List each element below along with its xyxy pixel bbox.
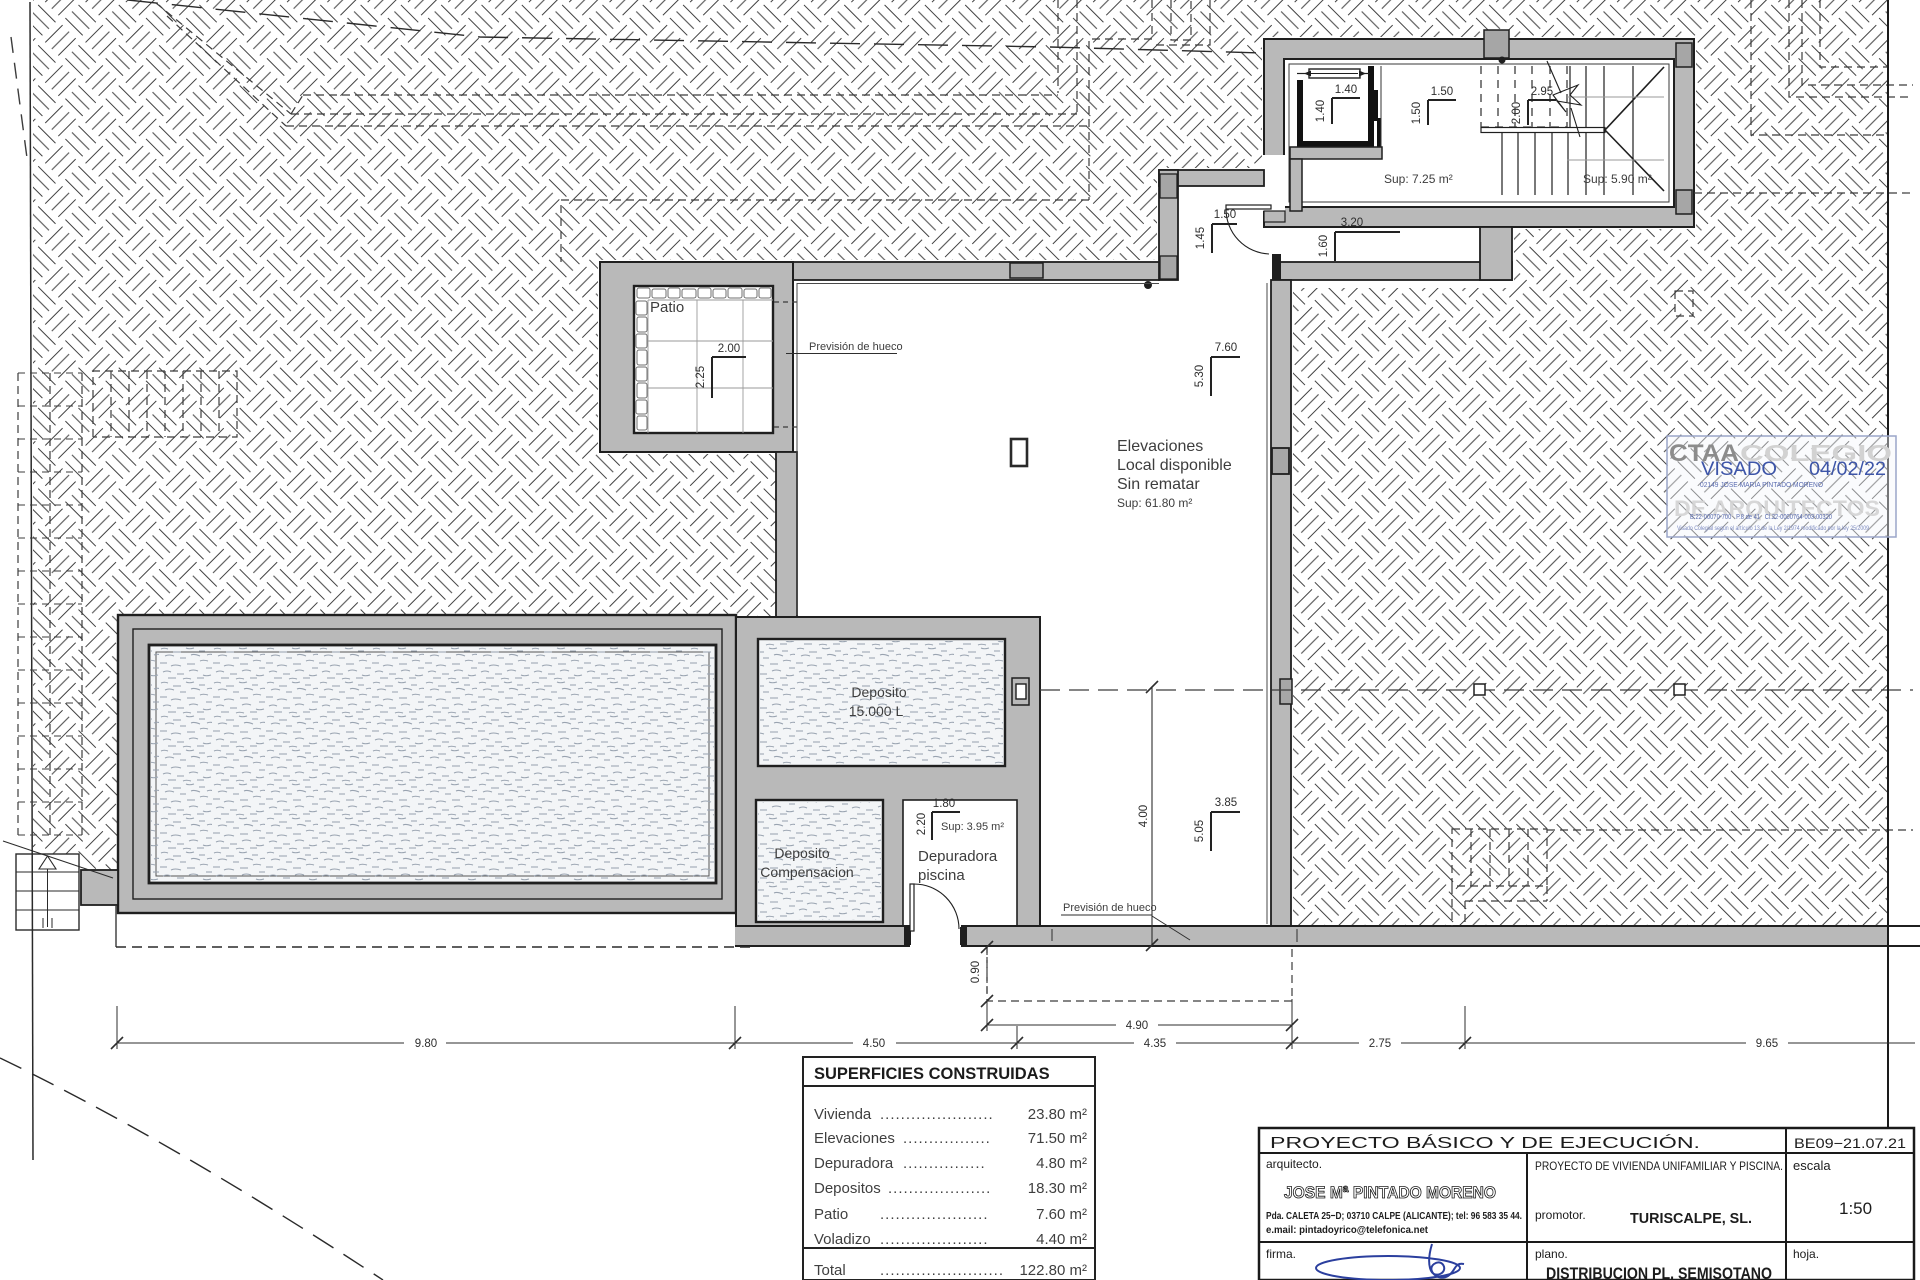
svg-text:1.50: 1.50 (1431, 86, 1453, 98)
svg-text:2.00: 2.00 (718, 343, 740, 355)
svg-text:TURISCALPE, SL.: TURISCALPE, SL. (1630, 1211, 1752, 1227)
svg-text:9.80: 9.80 (415, 1038, 437, 1050)
svg-text:4.50: 4.50 (863, 1038, 885, 1050)
svg-text:122.80 m²: 122.80 m² (1019, 1262, 1087, 1279)
svg-text:71.50 m²: 71.50 m² (1028, 1130, 1087, 1147)
svg-text:18.30 m²: 18.30 m² (1028, 1180, 1087, 1197)
svg-text:arquitecto.: arquitecto. (1266, 1157, 1322, 1171)
svg-text:1.40: 1.40 (1315, 100, 1327, 122)
svg-text:Previsión de hueco: Previsión de hueco (1063, 902, 1157, 914)
svg-text:15.000 L: 15.000 L (849, 703, 904, 719)
svg-text:4.90: 4.90 (1126, 1020, 1148, 1032)
svg-text:Voladizo: Voladizo (814, 1231, 871, 1248)
svg-text:BE09−21.07.21: BE09−21.07.21 (1794, 1135, 1906, 1151)
svg-text:04/02/22: 04/02/22 (1809, 459, 1886, 480)
svg-text:2.20: 2.20 (916, 813, 928, 835)
svg-text:1.40: 1.40 (1335, 84, 1357, 96)
svg-text:Depuradora: Depuradora (918, 848, 998, 865)
svg-text:VISADO: VISADO (1701, 459, 1777, 480)
svg-text:Sup: 5.90 m²: Sup: 5.90 m² (1583, 172, 1652, 186)
svg-text:Local disponible: Local disponible (1117, 457, 1232, 474)
svg-text:4.35: 4.35 (1144, 1038, 1166, 1050)
svg-text:0.90: 0.90 (970, 961, 982, 983)
svg-text:PROYECTO DE VIVIENDA UNIFAM: PROYECTO DE VIVIENDA UNIFAMILIAR Y PISCI… (1535, 1159, 1783, 1173)
svg-text:1.60: 1.60 (1318, 235, 1330, 257)
svg-text:1.50: 1.50 (1411, 102, 1423, 124)
svg-text:promotor.: promotor. (1535, 1208, 1586, 1222)
svg-text:3.85: 3.85 (1215, 797, 1237, 809)
svg-text:Deposito: Deposito (774, 845, 829, 861)
svg-text:e.mail: pintadoyrico@telefonic: e.mail: pintadoyrico@telefonica.net (1266, 1224, 1428, 1236)
svg-text:Patio: Patio (814, 1206, 848, 1223)
svg-text:4.80 m²: 4.80 m² (1036, 1155, 1087, 1172)
svg-text:Previsión de hueco: Previsión de hueco (809, 341, 903, 353)
svg-text:3.20: 3.20 (1341, 217, 1363, 229)
svg-text:2.95: 2.95 (1531, 86, 1553, 98)
svg-text:Depuradora: Depuradora (814, 1155, 894, 1172)
svg-text:Sup: 3.95 m²: Sup: 3.95 m² (941, 821, 1004, 833)
svg-text:2.00: 2.00 (1511, 102, 1523, 124)
svg-text:DISTRIBUCION PL. SEMISOTANO: DISTRIBUCION PL. SEMISOTANO (1546, 1265, 1772, 1280)
svg-text:PROYECTO BÁSICO Y DE EJECU: PROYECTO BÁSICO Y DE EJECUCIÓN. (1270, 1133, 1700, 1152)
svg-text:5.30: 5.30 (1194, 365, 1206, 387)
svg-text:23.80 m²: 23.80 m² (1028, 1106, 1087, 1123)
svg-text:9.65: 9.65 (1756, 1038, 1778, 1050)
svg-text:Deposito: Deposito (851, 684, 906, 700)
svg-text:Visado Colegial según el artíc: Visado Colegial según el artículo 13 de … (1677, 526, 1870, 532)
svg-text:2.25: 2.25 (695, 366, 707, 388)
svg-text:SUPERFICIES CONSTRUIDAS: SUPERFICIES CONSTRUIDAS (814, 1065, 1050, 1083)
svg-text:1:50: 1:50 (1839, 1199, 1872, 1218)
svg-text:................: ................ (903, 1155, 986, 1172)
svg-text:Depositos: Depositos (814, 1180, 881, 1197)
svg-text:Pda. CALETA 25−D; 03710 CALPE: Pda. CALETA 25−D; 03710 CALPE (ALICANTE)… (1266, 1210, 1522, 1222)
svg-text:......................: ...................... (880, 1106, 994, 1123)
svg-text:plano.: plano. (1535, 1247, 1568, 1261)
svg-text:firma.: firma. (1266, 1247, 1296, 1261)
svg-text:Elevaciones: Elevaciones (1117, 438, 1203, 455)
svg-text:.................: ................. (903, 1130, 991, 1147)
svg-text:Patio: Patio (650, 299, 684, 316)
svg-text:1.50: 1.50 (1214, 209, 1236, 221)
svg-text:Vivienda: Vivienda (814, 1106, 872, 1123)
svg-text:7.60 m²: 7.60 m² (1036, 1206, 1087, 1223)
svg-text:Elevaciones: Elevaciones (814, 1130, 895, 1147)
svg-text:.....................: ..................... (880, 1206, 989, 1223)
svg-text:Sin rematar: Sin rematar (1117, 476, 1200, 493)
svg-text:Compensacion: Compensacion (760, 864, 853, 880)
svg-text:........................: ........................ (880, 1262, 1004, 1279)
svg-text:Sup: 7.25 m²: Sup: 7.25 m² (1384, 172, 1453, 186)
svg-text:JOSE Mª PINTADO MORENO: JOSE Mª PINTADO MORENO (1284, 1183, 1496, 1202)
svg-text:1.80: 1.80 (933, 798, 955, 810)
svg-text:piscina: piscina (918, 867, 965, 884)
svg-text:....................: .................... (888, 1180, 991, 1197)
svg-text:2.75: 2.75 (1369, 1038, 1391, 1050)
svg-text:.....................: ..................... (880, 1231, 989, 1248)
svg-text:Sup: 61.80 m²: Sup: 61.80 m² (1117, 496, 1192, 510)
svg-text:7.60: 7.60 (1215, 342, 1237, 354)
svg-text:escala: escala (1793, 1158, 1831, 1173)
svg-text:4.40 m²: 4.40 m² (1036, 1231, 1087, 1248)
svg-text:5.05: 5.05 (1194, 820, 1206, 842)
svg-text:hoja.: hoja. (1793, 1247, 1819, 1261)
svg-text:1.45: 1.45 (1195, 227, 1207, 249)
svg-text:02149 JOSE MARIA PINTADO MOREN: 02149 JOSE MARIA PINTADO MORENO (1700, 480, 1823, 489)
svg-text:B:22-00070-700 P.8 de 41 C: B:22-00070-700 P.8 de 41 Cl.22-0000764-0… (1690, 514, 1832, 521)
svg-text:Total: Total (814, 1262, 846, 1279)
svg-text:4.00: 4.00 (1138, 805, 1150, 827)
